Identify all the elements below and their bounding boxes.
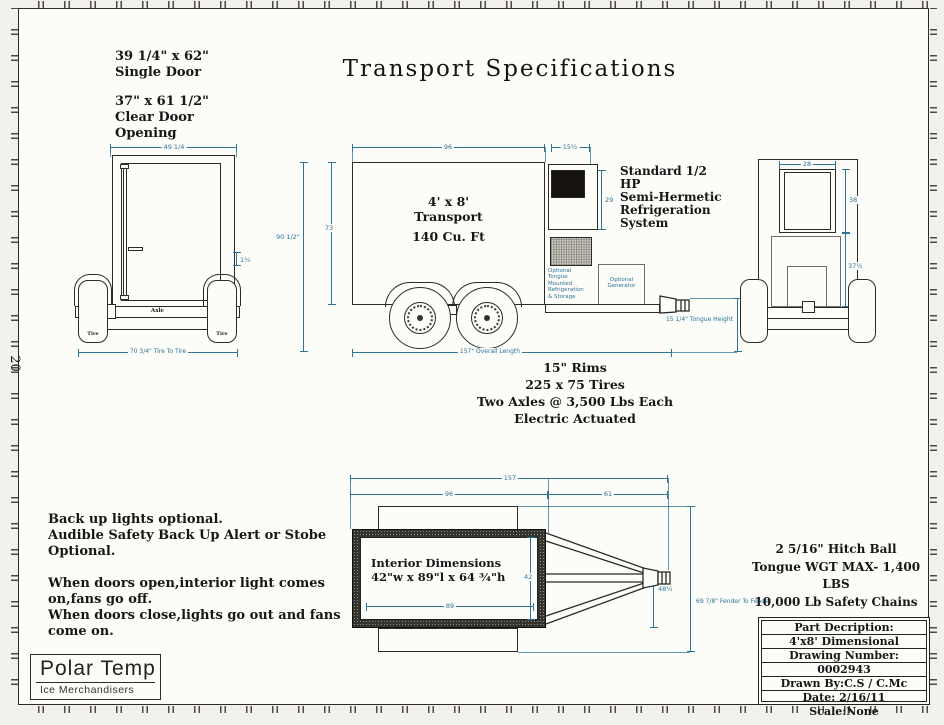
axle-specs-line: 15" Rims xyxy=(455,359,695,376)
tongue-height-ext-line xyxy=(690,298,737,299)
side-name-label: Transport xyxy=(352,209,545,224)
options-note-line: Audible Safety Back Up Alert or Stobe xyxy=(48,528,358,544)
side-ext-line xyxy=(352,147,353,162)
tongue-width-dim-line xyxy=(653,571,654,628)
generator-label-line: Generator xyxy=(598,283,645,289)
top-body-dim-label: 96 xyxy=(443,490,455,498)
fender-to-fender-dim-line xyxy=(690,506,691,652)
front-door-hinge xyxy=(123,167,127,297)
drawing-sheet: Transport Specifications 20 39 1/4" x 62… xyxy=(0,0,944,725)
hitch-note-line: Tongue WGT MAX- 1,400 LBS xyxy=(740,559,932,594)
axle-specs-line: Electric Actuated xyxy=(455,410,695,427)
hitch-note-line: 10,000 Lb Safety Chains xyxy=(740,594,932,612)
tongue-height-dim-label: 15 1/4" Tongue Height xyxy=(653,316,733,323)
condenser-height-dim-label: 29 xyxy=(604,196,614,204)
refrigeration-note-line: System xyxy=(620,217,722,230)
refrigeration-note: Standard 1/2 HP Semi-Hermetic Refrigerat… xyxy=(620,165,722,230)
logo-block: Polar Temp Ice Merchandisers xyxy=(30,654,161,700)
front-width-dim-label: 49 1/4 xyxy=(162,143,187,151)
title-block-row: Drawing Number: xyxy=(762,649,926,663)
top-overall-dim-label: 157 xyxy=(502,474,518,482)
options-note: Back up lights optional. Audible Safety … xyxy=(48,512,358,640)
generator-box-label: Optional Generator xyxy=(598,277,645,290)
top-tongue-dim-label: 61 xyxy=(602,490,614,498)
options-note-line: Optional. xyxy=(48,544,358,560)
fender-ext-line xyxy=(518,652,690,653)
page-title: Transport Specifications xyxy=(340,56,680,82)
rear-opening-width-dim-label: 28 xyxy=(801,160,813,168)
condenser-height-dim-line xyxy=(601,170,602,230)
storage-box xyxy=(550,237,592,266)
side-overall-height-dim-label: 90 1/2" xyxy=(275,233,301,241)
axle-specs-line: Two Axles @ 3,500 Lbs Each xyxy=(455,393,695,410)
side-hub-rear xyxy=(484,315,490,321)
tongue-height-ext-line xyxy=(672,352,737,353)
front-side-dim-label: 1¾ xyxy=(239,256,251,264)
door-note-size-label: Single Door xyxy=(115,65,209,81)
side-hub-front xyxy=(417,315,423,321)
rear-opening-inner xyxy=(784,172,831,230)
condenser-unit xyxy=(551,170,585,198)
interior-dimensions-note: Interior Dimensions 42"w x 89"l x 64 ¾"h xyxy=(371,556,505,584)
door-note: 39 1/4" x 62" Single Door 37" x 61 1/2" … xyxy=(115,49,209,142)
front-ext-line xyxy=(110,147,111,157)
interior-dimensions-values: 42"w x 89"l x 64 ¾"h xyxy=(371,570,505,584)
overall-length-dim-label: 157" Overall Length xyxy=(458,348,522,355)
hitch-note-line: 2 5/16" Hitch Ball xyxy=(740,541,932,559)
side-length-dim-label: 96 xyxy=(442,143,454,151)
options-note-line: When doors close,lights go out and fans xyxy=(48,608,358,624)
top-fender-upper xyxy=(378,506,518,530)
axle-specs-line: 225 x 75 Tires xyxy=(455,376,695,393)
rear-jack-mount xyxy=(802,301,815,313)
title-block-row: Date: 2/16/11 xyxy=(762,691,926,705)
logo-name: Polar Temp xyxy=(31,655,160,681)
interior-dimensions-title: Interior Dimensions xyxy=(371,556,505,570)
door-note-clear-label1: Clear Door xyxy=(115,110,209,126)
door-note-size: 39 1/4" x 62" xyxy=(115,49,209,65)
rear-tire-left xyxy=(740,279,768,343)
interior-length-dim-label: 89 xyxy=(444,602,456,610)
fender-ext-line xyxy=(518,506,690,507)
title-block-row: 0002943 xyxy=(762,663,926,677)
front-tire-right-label: Tire xyxy=(207,331,237,337)
logo-tagline: Ice Merchandisers xyxy=(36,682,155,696)
rear-opening-height-dim-label: 38 xyxy=(848,196,858,204)
front-hinge-knuckle-top xyxy=(120,164,129,169)
front-side-dim-line xyxy=(236,252,237,266)
top-fender-lower xyxy=(378,628,518,652)
options-note-line: come on. xyxy=(48,624,358,640)
rear-lower-height-dim-line xyxy=(845,233,846,307)
zone-label: 20 xyxy=(7,355,22,372)
options-note-line: Back up lights optional. xyxy=(48,512,358,528)
door-note-clear-label2: Opening xyxy=(115,126,209,142)
storage-label-line: & Storage xyxy=(548,294,600,300)
tongue-beam-side xyxy=(545,304,660,313)
tongue-height-dim-line xyxy=(737,298,738,352)
top-ext-line xyxy=(350,478,351,529)
side-height-dim-label: 73 xyxy=(324,224,334,232)
front-hinge-knuckle-bottom xyxy=(120,295,129,300)
tongue-width-dim-label: 48¼ xyxy=(657,585,674,593)
side-body-text: 4' x 8' Transport 140 Cu. Ft xyxy=(352,194,545,244)
title-block-row: Drawn By:C.S / C.Mc xyxy=(762,677,926,691)
axle-specs: 15" Rims 225 x 75 Tires Two Axles @ 3,50… xyxy=(455,359,695,427)
rear-opening-height-dim-line xyxy=(845,169,846,233)
front-ext-line xyxy=(236,147,237,157)
options-note-line: on,fans go off. xyxy=(48,592,358,608)
side-condenser-dim-label: 15½ xyxy=(561,143,580,151)
side-capacity-label: 140 Cu. Ft xyxy=(352,229,545,244)
side-ext-line xyxy=(590,147,591,164)
title-block: Part Decription: 4'x8' Dimensional Drawi… xyxy=(758,617,930,705)
top-ext-line xyxy=(668,478,669,570)
side-height-dim-line xyxy=(331,162,332,305)
border-ticks-top xyxy=(18,1,929,8)
interior-width-dim-label: 42 xyxy=(523,573,533,581)
title-block-inner: Part Decription: 4'x8' Dimensional Drawi… xyxy=(761,620,927,702)
storage-box-label: Optional Tongue Mounted Refrigeration & … xyxy=(548,268,600,300)
options-note-line: When doors open,interior light comes xyxy=(48,576,358,592)
front-tire-dim-label: 70 3/4" Tire To Tire xyxy=(128,348,188,355)
front-tire-left-label: Tire xyxy=(78,331,108,337)
front-door-handle xyxy=(128,247,143,251)
side-size-label: 4' x 8' xyxy=(352,194,545,209)
door-note-clear-size: 37" x 61 1/2" xyxy=(115,94,209,110)
rear-tire-right xyxy=(848,279,876,343)
title-block-row: Part Decription: xyxy=(762,621,926,635)
hitch-note: 2 5/16" Hitch Ball Tongue WGT MAX- 1,400… xyxy=(740,541,932,611)
side-overall-height-dim-line xyxy=(303,162,304,352)
title-block-row: Scale:None xyxy=(762,705,926,718)
side-ext-line xyxy=(545,147,546,162)
title-block-row: 4'x8' Dimensional xyxy=(762,635,926,649)
rear-lower-height-dim-label: 37½ xyxy=(847,262,864,270)
